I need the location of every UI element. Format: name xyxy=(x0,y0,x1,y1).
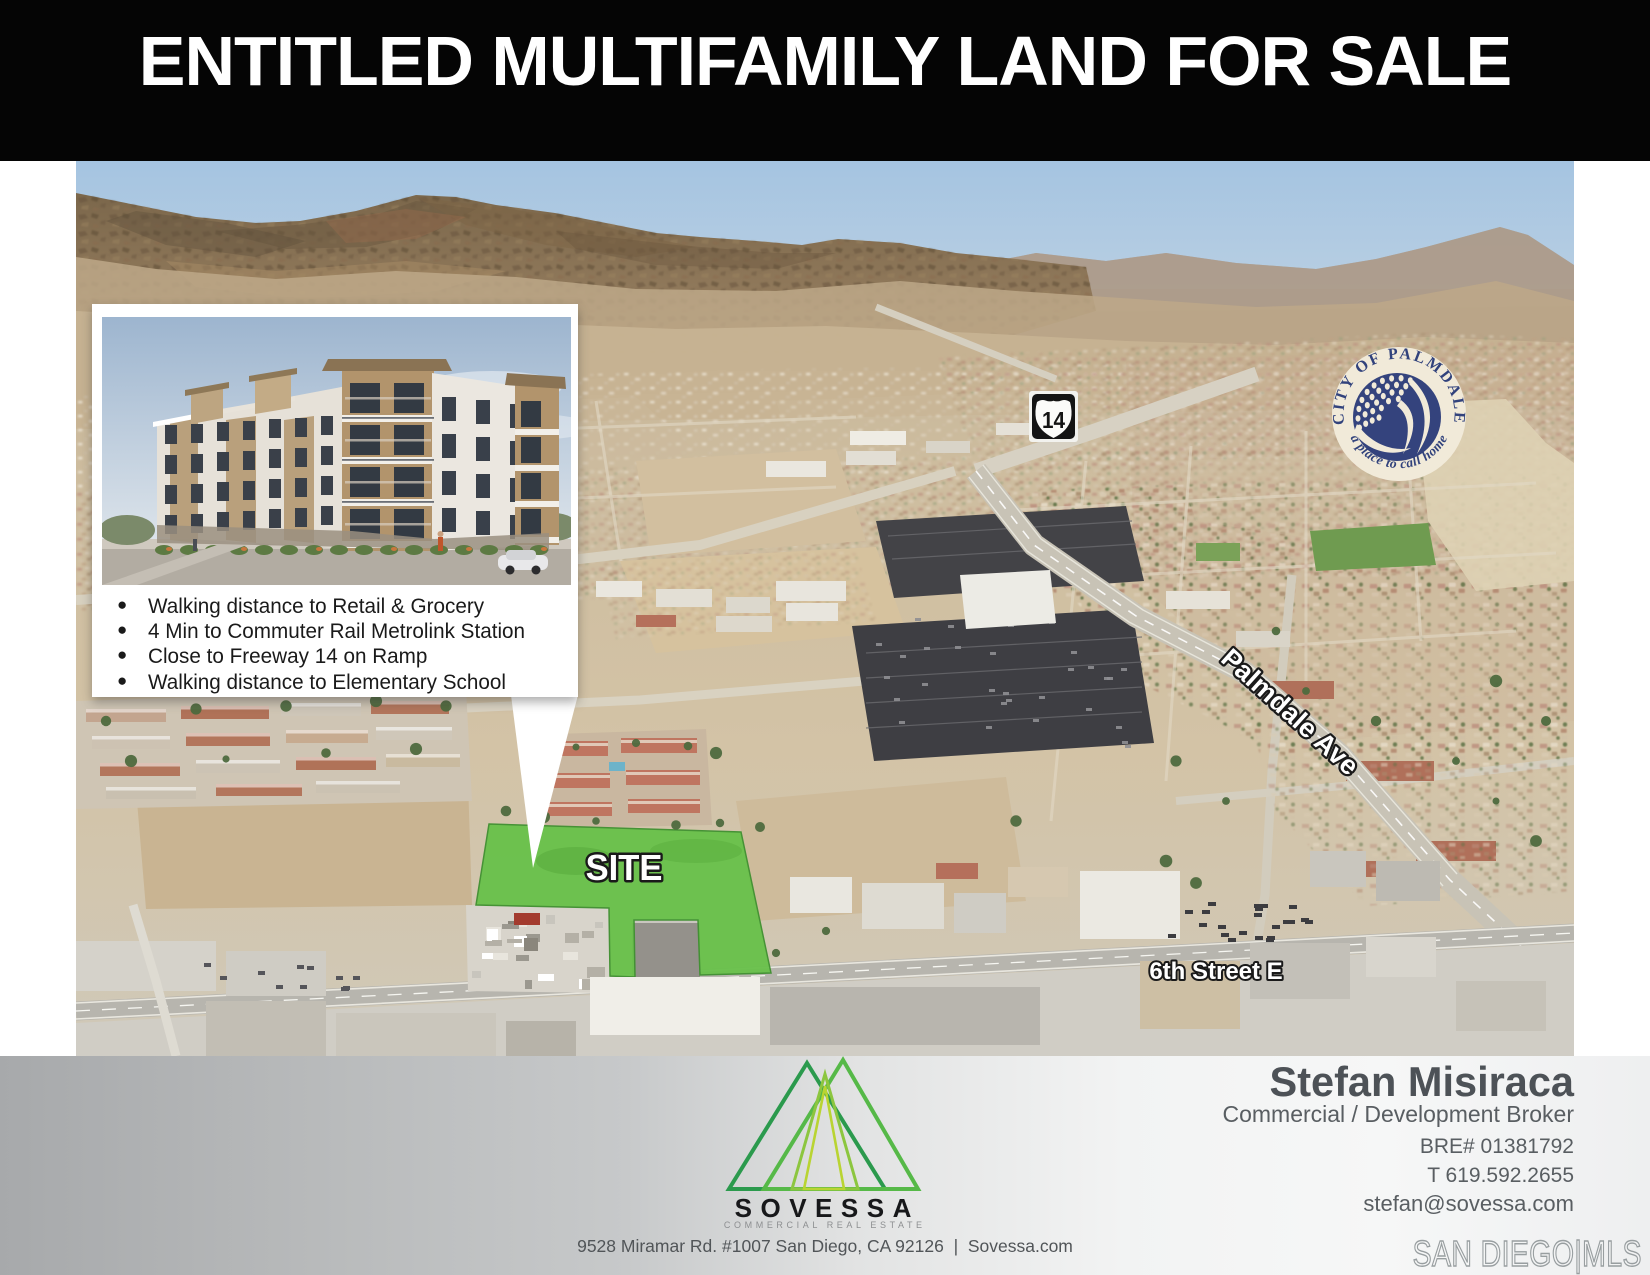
svg-text:14: 14 xyxy=(1042,407,1066,433)
svg-text:6th Street E: 6th Street E xyxy=(1149,958,1282,985)
svg-text:SITE: SITE xyxy=(586,848,663,888)
